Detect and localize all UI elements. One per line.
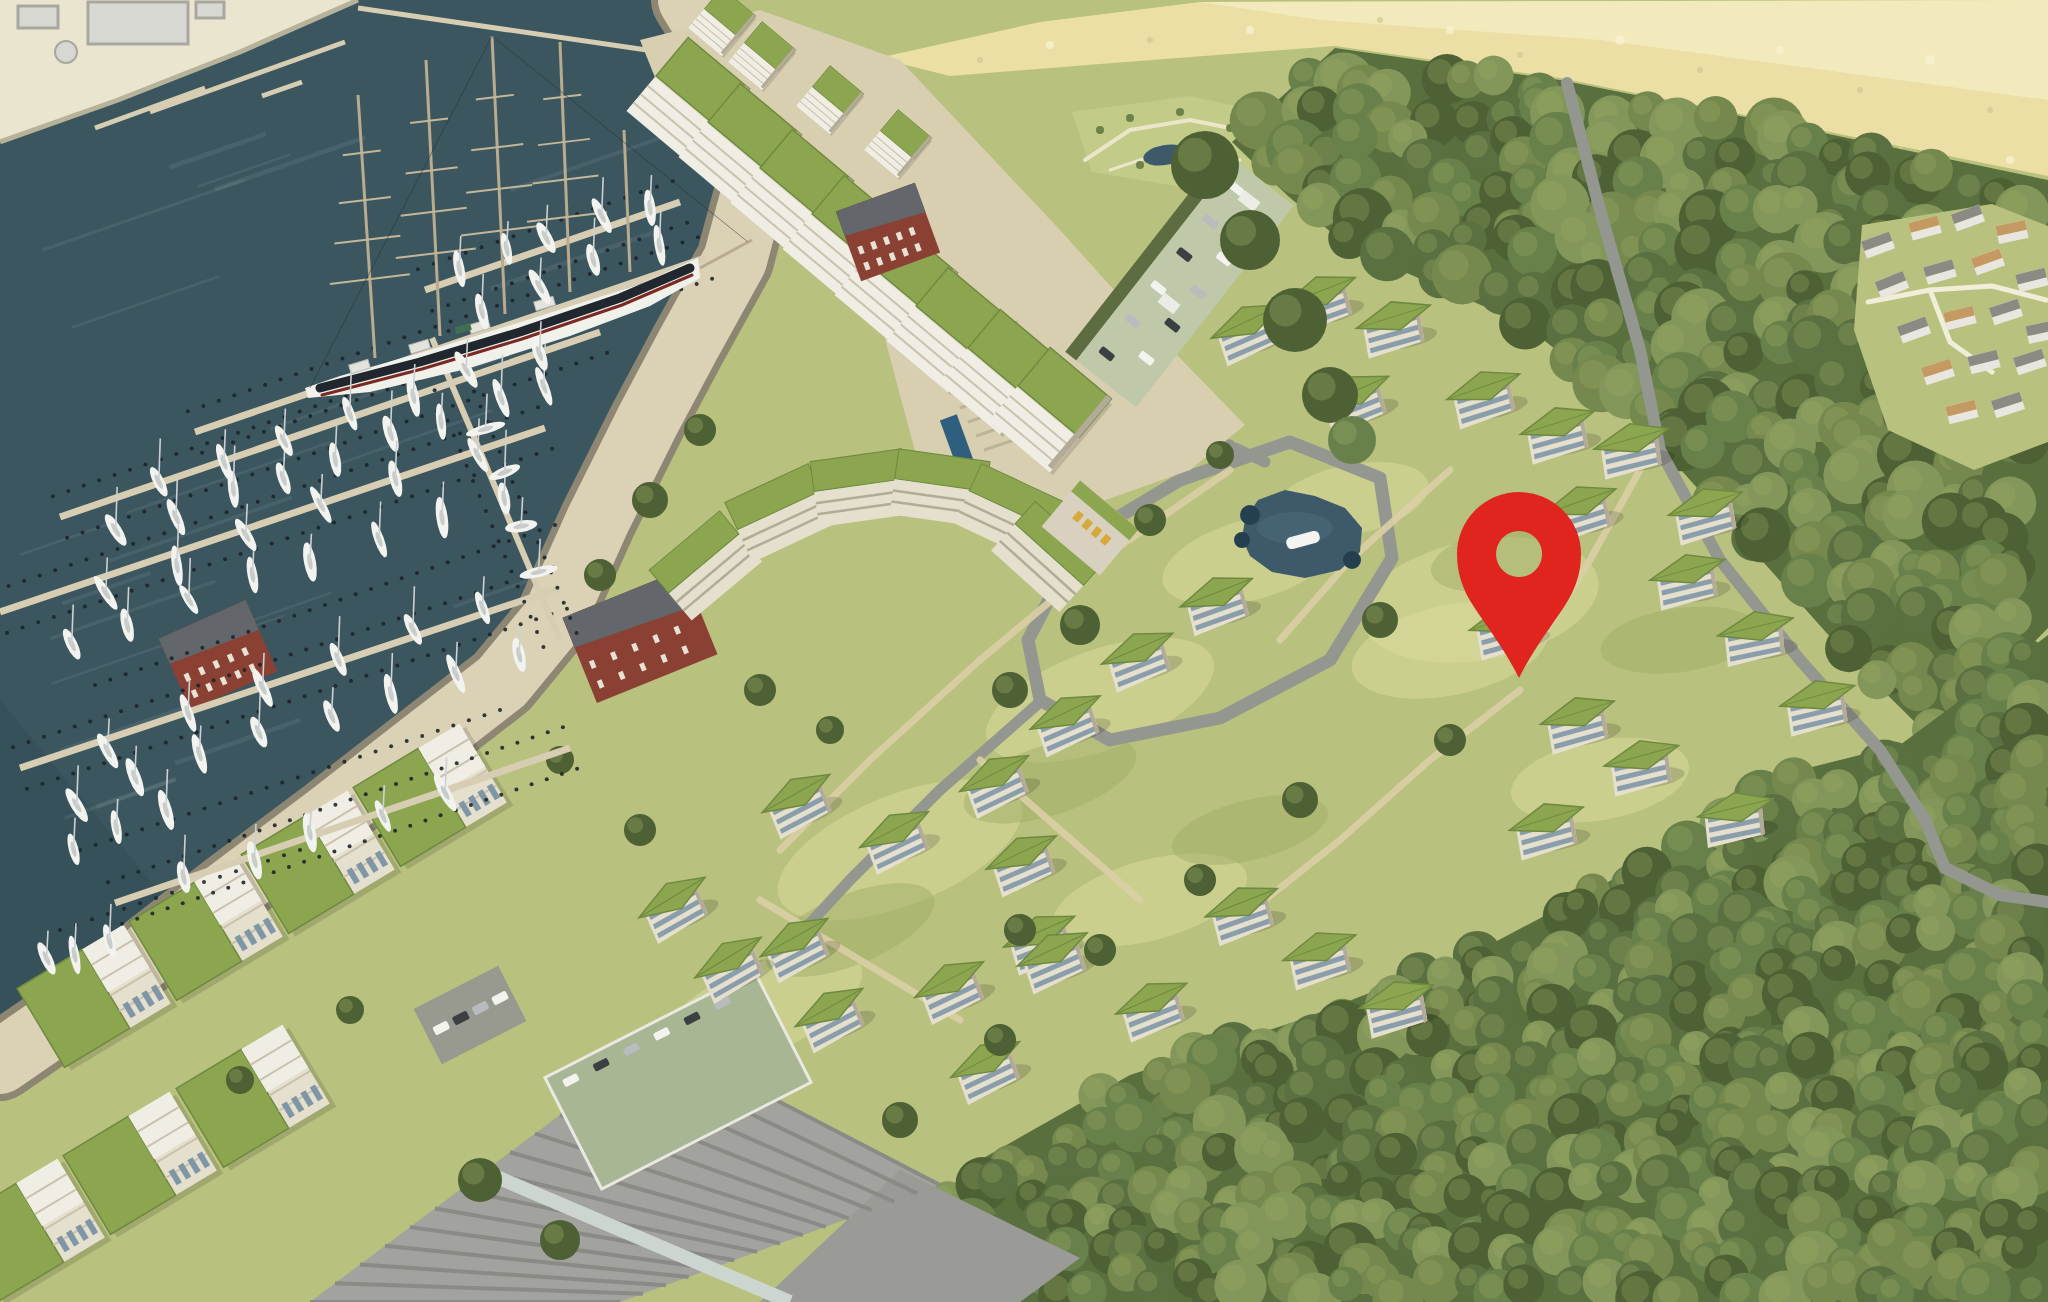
- resort-site-plan-render: [0, 0, 2048, 1302]
- warehouse-building: [18, 6, 58, 28]
- warehouse-building: [88, 2, 188, 44]
- storage-tank: [55, 41, 77, 63]
- site-map-canvas: [0, 0, 2048, 1302]
- warehouse-building: [196, 2, 224, 18]
